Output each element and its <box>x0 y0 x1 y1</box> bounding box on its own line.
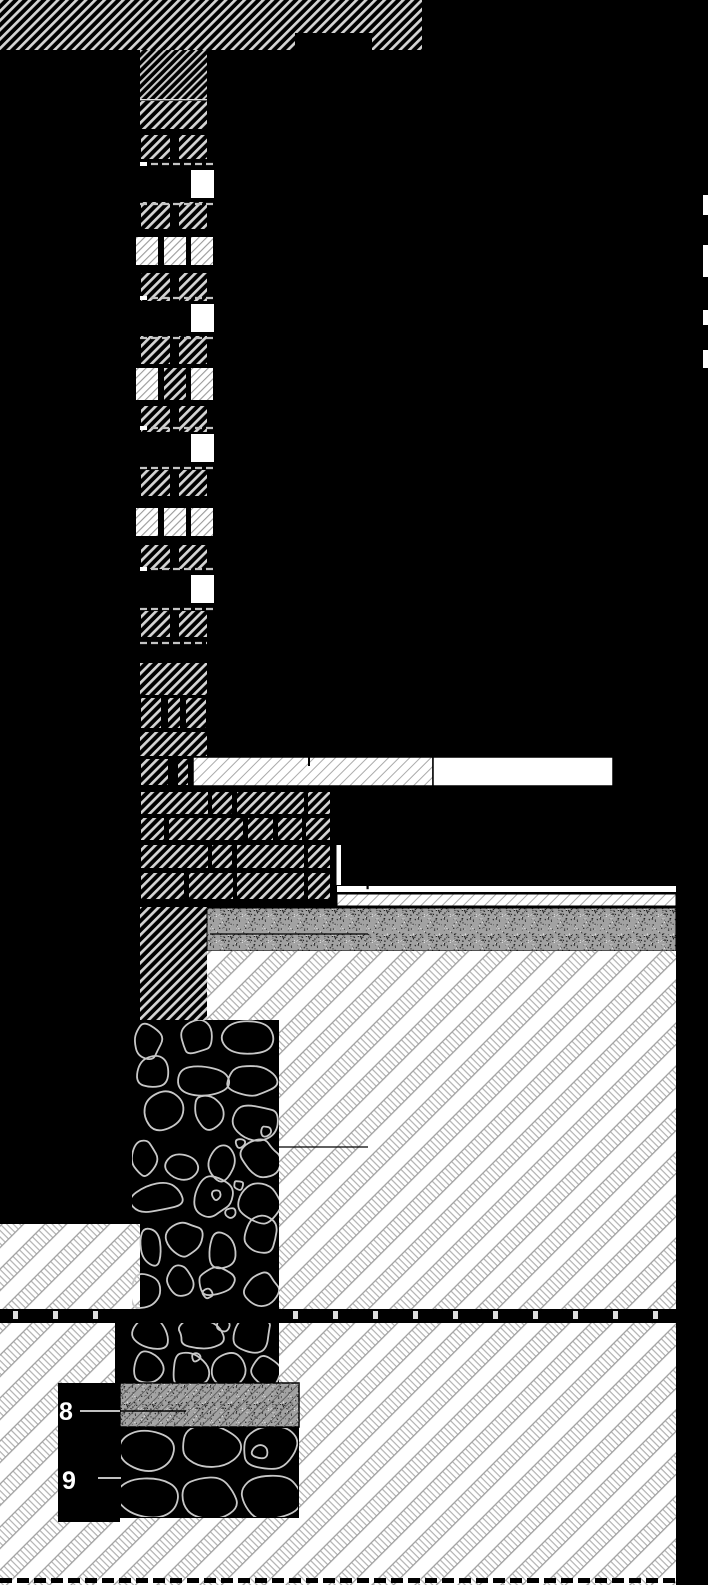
svg-text:9: 9 <box>62 1467 76 1495</box>
svg-text:8: 8 <box>59 1398 73 1426</box>
